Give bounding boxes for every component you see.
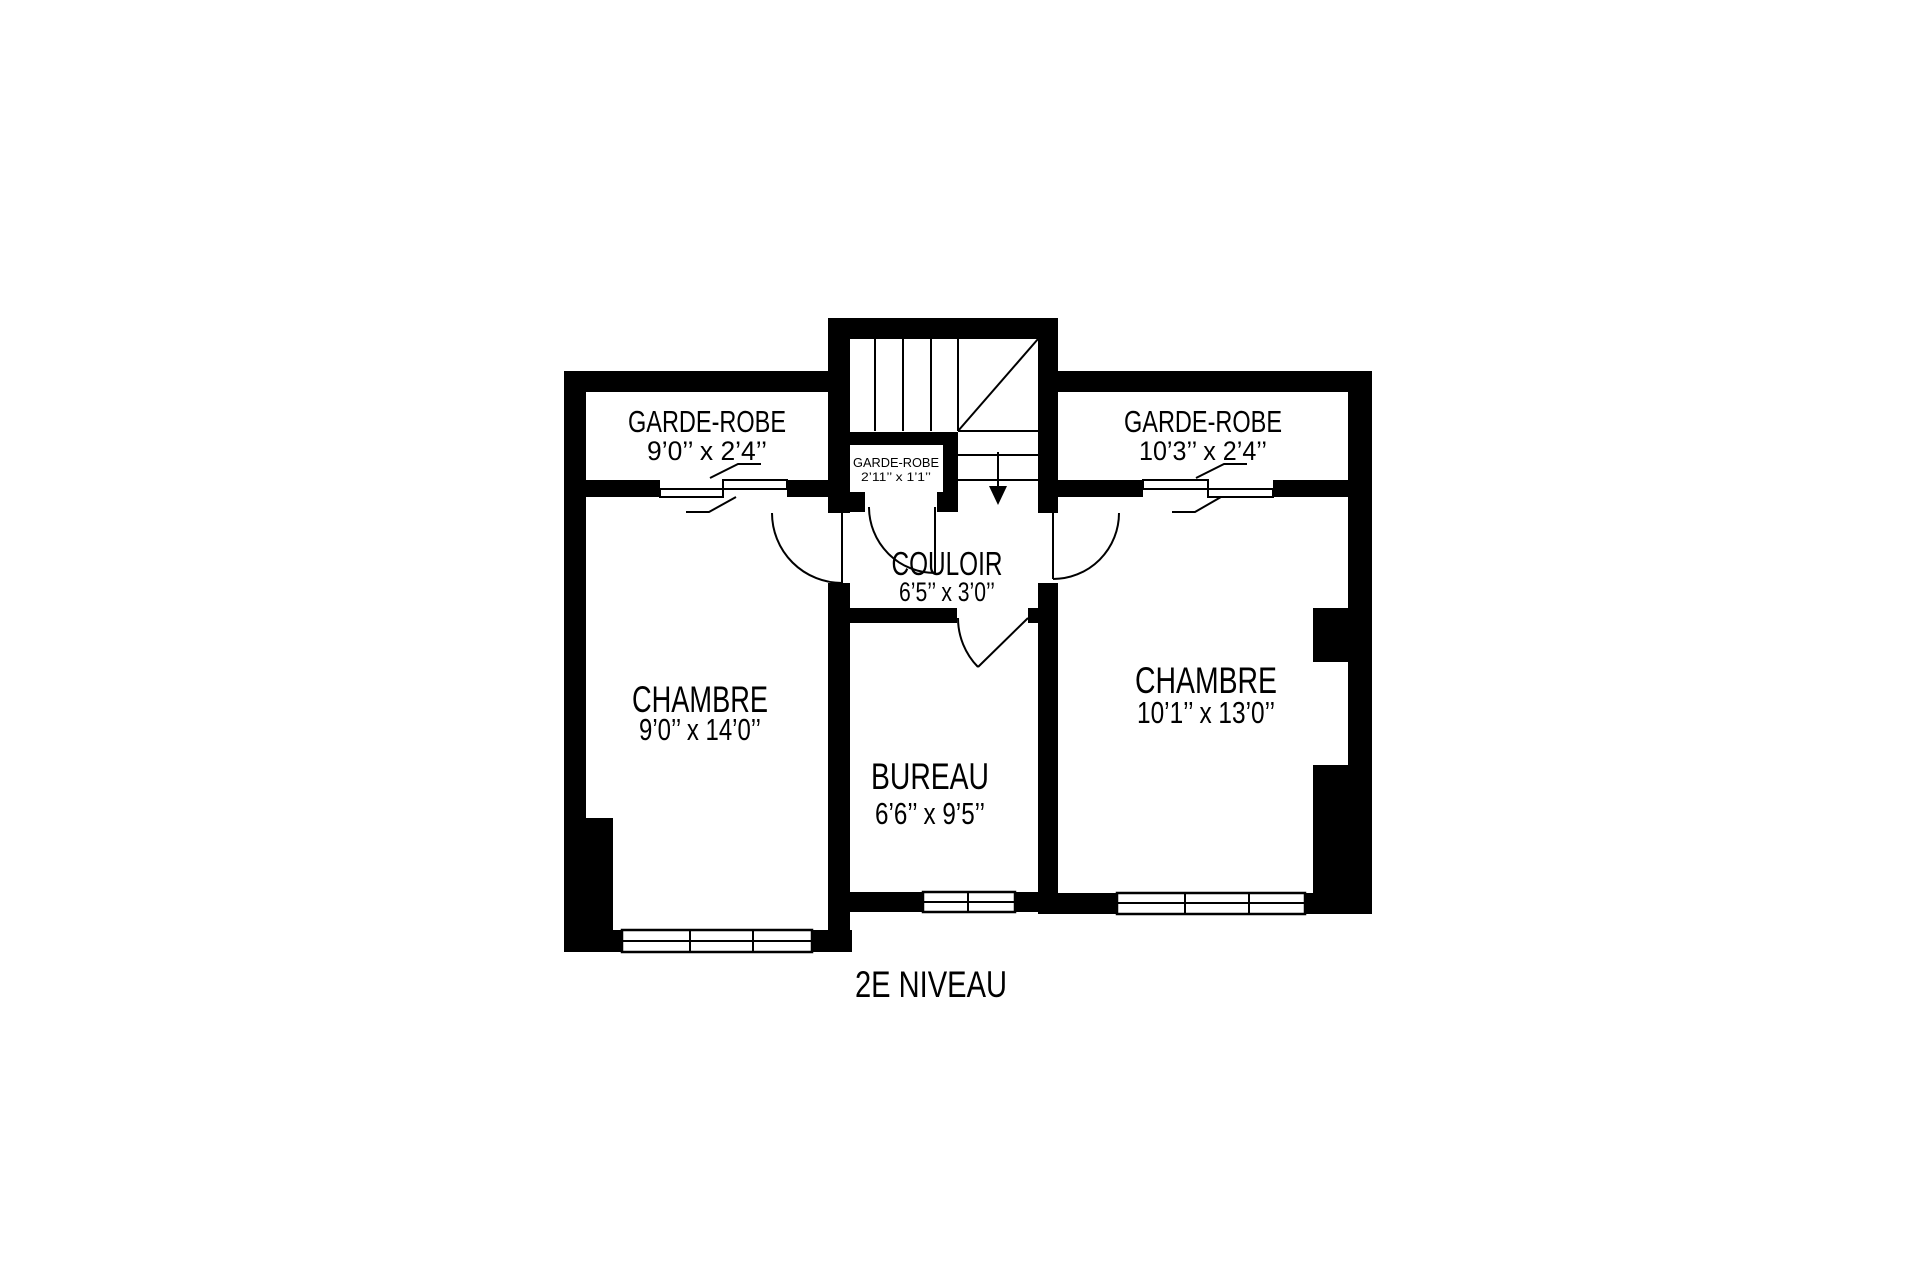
door-arc (772, 513, 842, 583)
slide-direction-tick (1196, 464, 1247, 478)
slide-direction-tick (686, 497, 736, 512)
stair-break-line (958, 339, 1038, 431)
wall-bureau-right (1038, 583, 1058, 914)
dims-couloir: 6’5’’ x 3’0’’ (899, 577, 995, 607)
dims-garde-robe-small: 2’11’’ x 1’1’’ (861, 470, 931, 484)
sliding-door-garde-robe-left (660, 464, 787, 512)
wall-top-left-section (564, 371, 850, 392)
wall-right-outer (1348, 371, 1372, 914)
door-bureau (958, 618, 1028, 667)
wall-chambre-left-bottom-b (812, 930, 852, 952)
slide-direction-tick (1172, 497, 1221, 512)
label-garde-robe-small: GARDE-ROBE (853, 455, 939, 470)
slide-direction-tick (710, 464, 761, 478)
sliding-door-garde-robe-right (1143, 464, 1273, 512)
windows (622, 892, 1305, 952)
jamb-small-gr-right (937, 492, 958, 512)
wall-stair-right (1038, 318, 1058, 513)
dims-garde-robe-left: 9’0’’ x 2’4’’ (647, 436, 767, 466)
label-bureau: BUREAU (871, 756, 989, 797)
floor-plan: GARDE-ROBE 9’0’’ x 2’4’’ GARDE-ROBE 10’3… (0, 0, 1920, 1279)
wall-bureau-bottom-a (828, 892, 923, 912)
wall-right-bottom-b (1305, 893, 1372, 914)
dims-bureau: 6’6’’ x 9’5’’ (875, 796, 985, 831)
door-arc (1053, 513, 1119, 579)
door-chambre-right (1053, 513, 1119, 579)
stair-direction-arrow-head (989, 486, 1007, 505)
label-garde-robe-left: GARDE-ROBE (628, 404, 786, 439)
window-bureau (923, 892, 1015, 912)
door-leaf (978, 618, 1028, 667)
door-chambre-left (772, 513, 842, 583)
wall-top-right-section (1058, 371, 1370, 392)
wall-gr-left-a (586, 480, 660, 497)
wall-gr-right-a (1058, 480, 1143, 497)
dims-chambre-left: 9’0’’ x 14’0’’ (639, 712, 761, 747)
wall-notch-left (586, 818, 613, 930)
jamb-small-gr-left (828, 492, 865, 512)
wall-right-bottom-a (1038, 893, 1117, 914)
door-arc (958, 618, 978, 667)
dims-chambre-right: 10’1’’ x 13’0’’ (1137, 695, 1275, 730)
wall-gr-right-b (1273, 480, 1348, 497)
wall-chambre-left-bottom-a (564, 930, 622, 952)
dims-garde-robe-right: 10’3’’ x 2’4’’ (1139, 436, 1267, 466)
sliding-doors (660, 464, 1273, 512)
jamb-couloir-bottom (1028, 608, 1058, 623)
wall-stair-top (828, 318, 1058, 339)
wall-small-gr-top (828, 432, 958, 445)
wall-bump-right-lower (1313, 765, 1348, 893)
window-chambre-right (1117, 893, 1305, 914)
wall-left-outer (564, 371, 586, 952)
wall-small-gr-right (943, 445, 958, 492)
label-garde-robe-right: GARDE-ROBE (1124, 404, 1282, 439)
wall-couloir-bottom (828, 608, 957, 623)
window-chambre-left (622, 930, 812, 952)
floor-plan-page: GARDE-ROBE 9’0’’ x 2’4’’ GARDE-ROBE 10’3… (0, 0, 1920, 1279)
wall-bump-right-upper (1313, 608, 1348, 662)
floor-title: 2E NIVEAU (855, 964, 1007, 1005)
